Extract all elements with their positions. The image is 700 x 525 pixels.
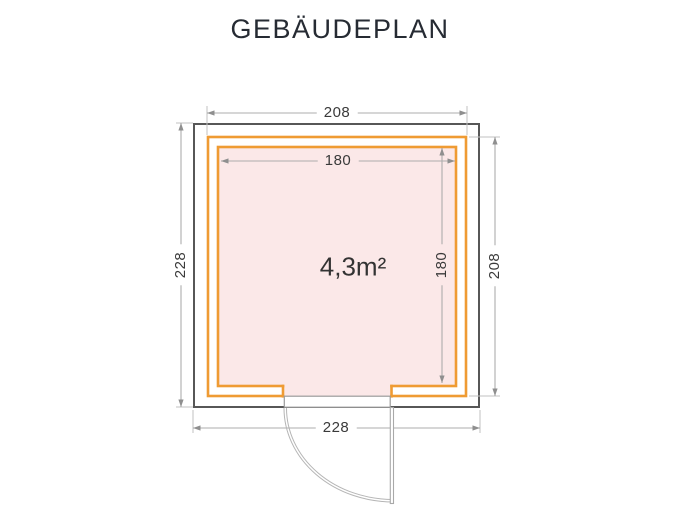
- dim-label-top-width: 208: [317, 105, 358, 122]
- building-plan-page: GEBÄUDEPLAN: [0, 0, 700, 525]
- area-label: 4,3m²: [320, 252, 386, 283]
- dim-label-bottom-width: 228: [316, 420, 357, 437]
- dim-label-left-height: 228: [173, 245, 190, 286]
- dim-label-right-height: 208: [487, 246, 504, 287]
- door-leaf: [390, 408, 393, 504]
- dim-label-inner-width: 180: [318, 153, 359, 170]
- door-opening-floor: [284, 381, 390, 396]
- dim-label-inner-height: 180: [434, 245, 451, 286]
- door-threshold: [284, 396, 390, 407]
